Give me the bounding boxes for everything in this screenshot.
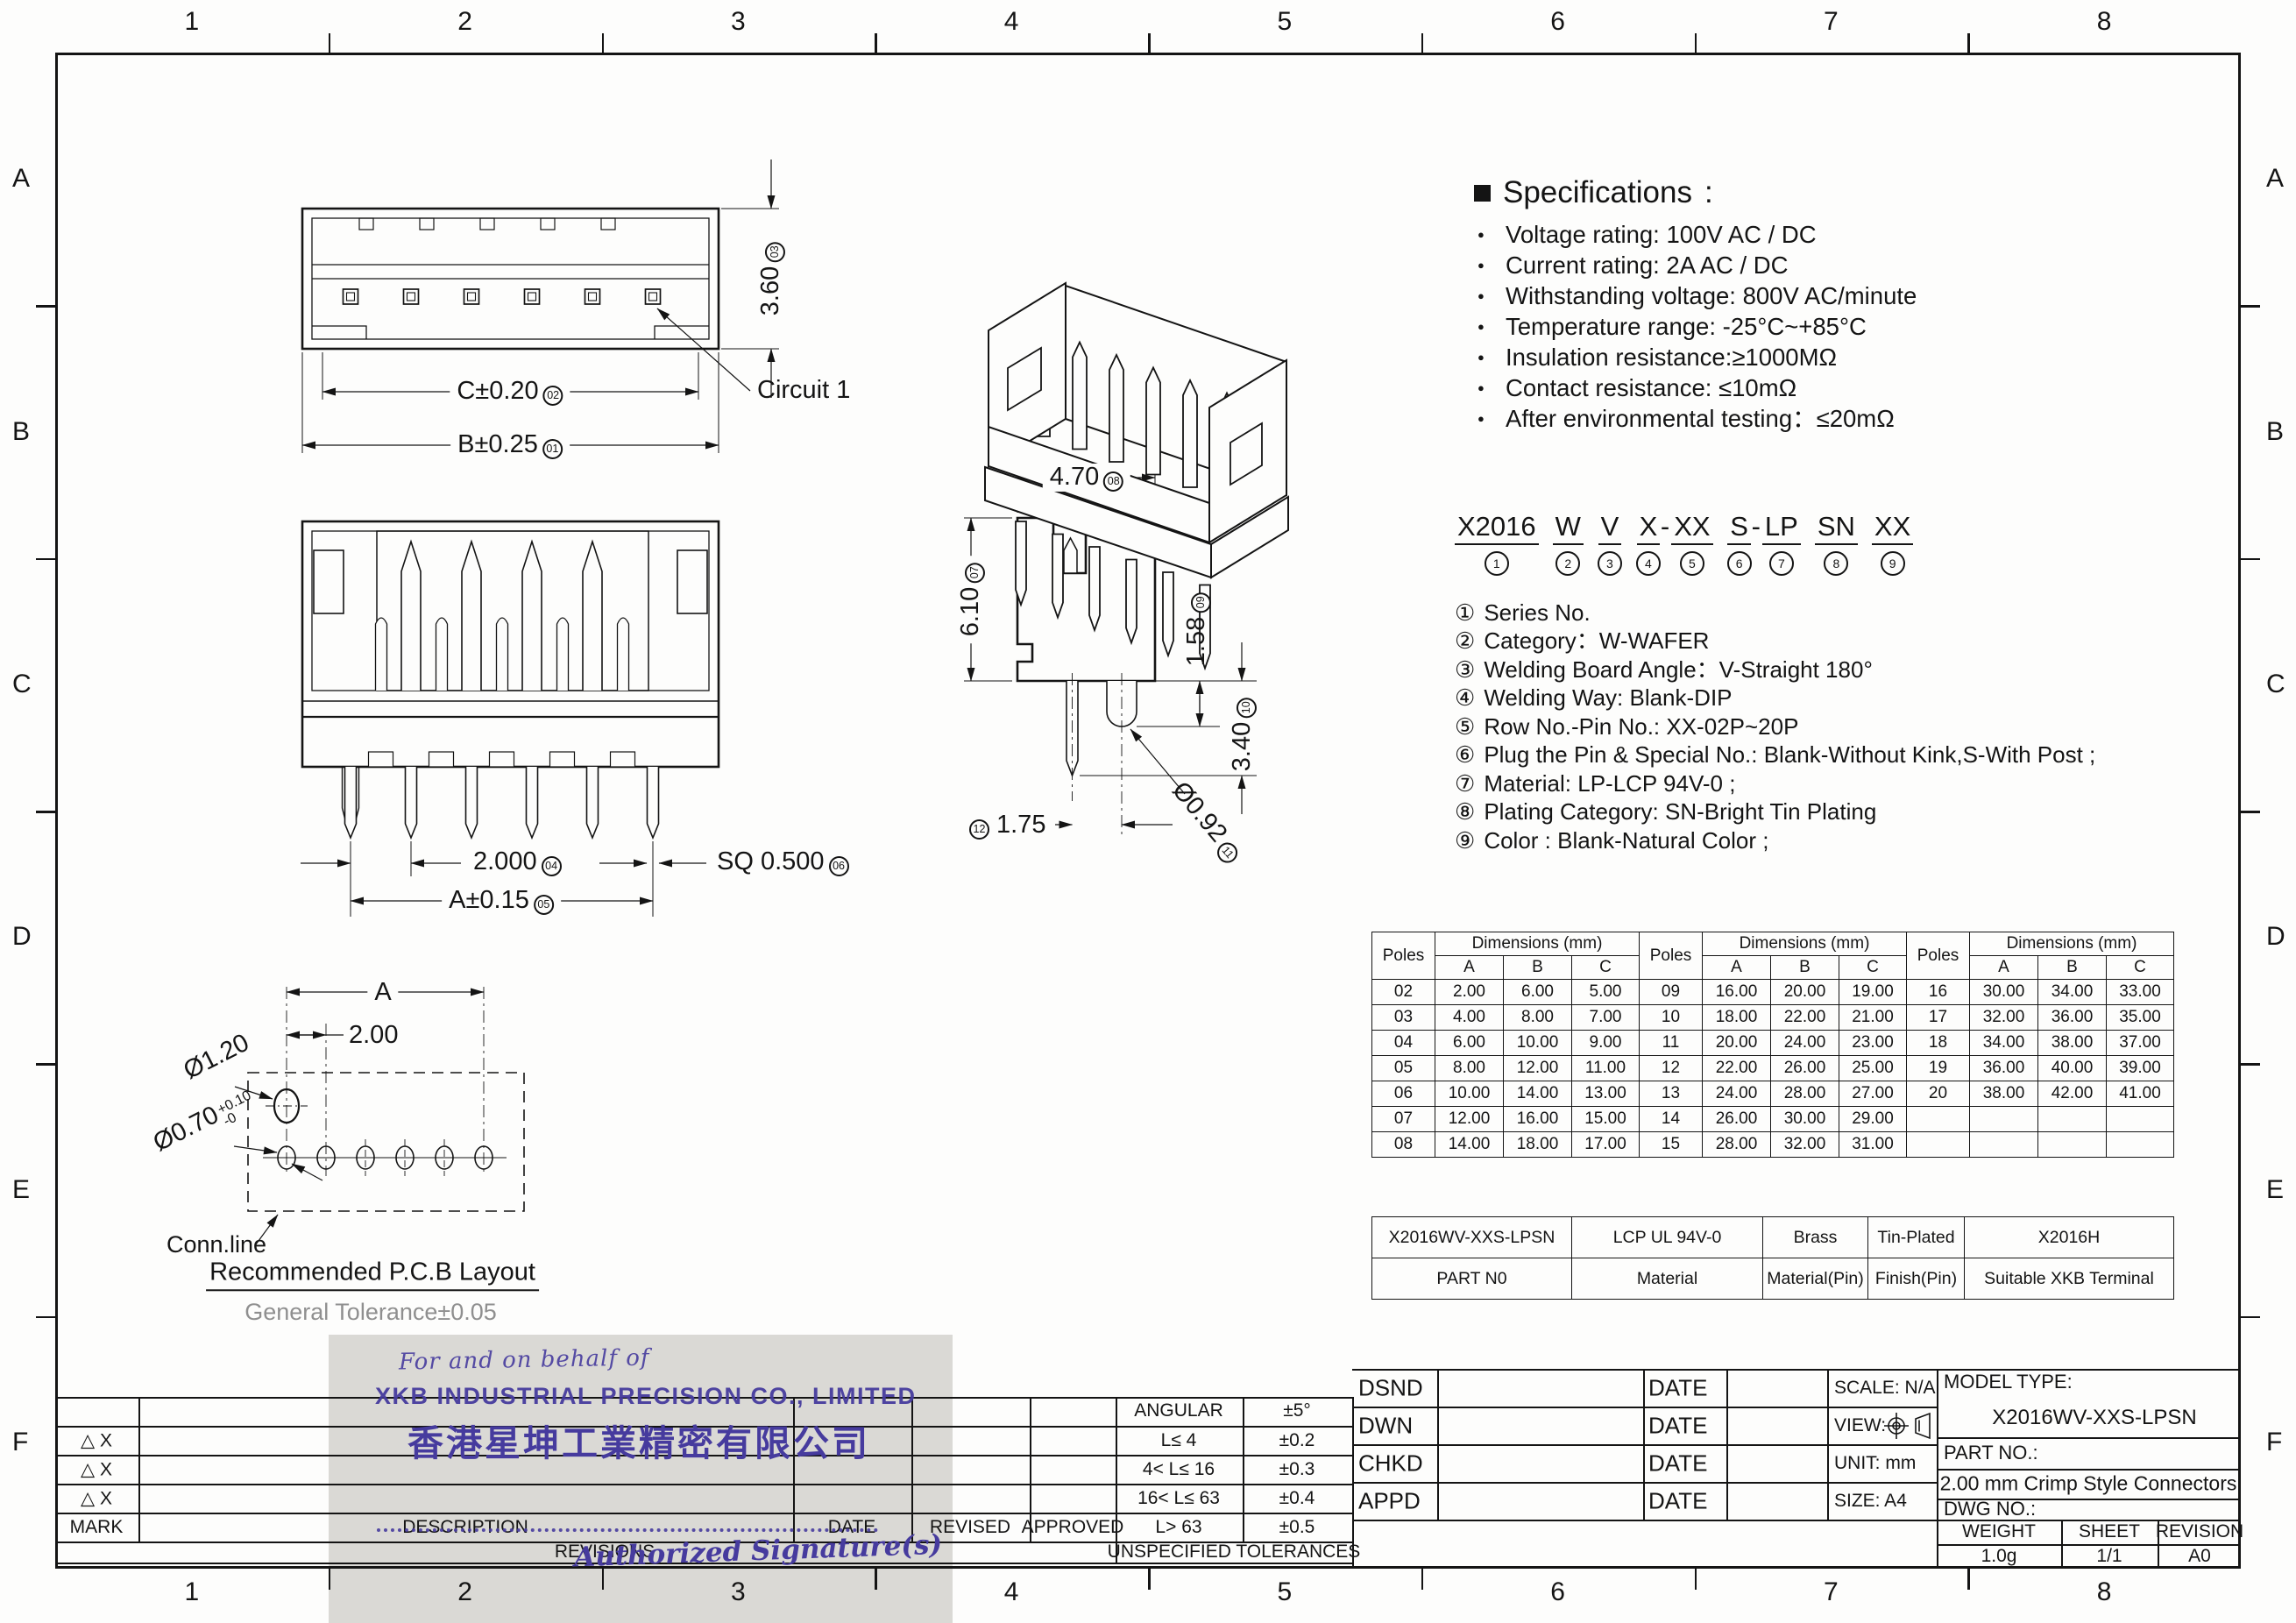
- table-cell: 42.00: [2038, 1081, 2107, 1107]
- table-cell: 19: [1907, 1056, 1970, 1081]
- legend-text: Welding Way: Blank-DIP: [1484, 684, 1732, 711]
- tol-value: ±5°: [1283, 1400, 1311, 1421]
- table-cell: 28.00: [1703, 1132, 1771, 1158]
- table-cell: 31.00: [1839, 1132, 1907, 1158]
- table-cell: 24.00: [1771, 1031, 1839, 1056]
- table-row: 058.0012.0011.001222.0026.0025.001936.00…: [1372, 1056, 2174, 1081]
- stamp-company-en: XKB INDUSTRIAL PRECISION CO., LIMITED: [375, 1383, 917, 1410]
- general-tolerance-label: General Tolerance±0.05: [244, 1300, 497, 1324]
- table-cell: 37.00: [2107, 1031, 2174, 1056]
- pn-token-text: SN: [1815, 513, 1858, 545]
- grid-column-label: 7: [1824, 7, 1839, 37]
- table-cell: 07: [1372, 1107, 1435, 1132]
- pn-token-text: S: [1727, 513, 1751, 545]
- border-tick: [1695, 33, 1697, 54]
- table-cell: 16.00: [1504, 1107, 1572, 1132]
- revision-value: A0: [2188, 1546, 2211, 1567]
- tol-value: ±0.3: [1279, 1459, 1315, 1480]
- stamp-for-text: For and on behalf of: [399, 1345, 650, 1376]
- grid-column-label: 4: [1004, 1577, 1019, 1607]
- legend-line: ③Welding Board Angle：V-Straight 180°: [1455, 656, 2095, 684]
- table-cell: 5.00: [1572, 980, 1640, 1005]
- approved-header: APPROVED: [1022, 1517, 1124, 1538]
- product-name: 2.00 mm Crimp Style Connectors: [1940, 1472, 2237, 1496]
- legend-number: ⑤: [1455, 713, 1475, 740]
- dim-1-75: 121.75: [969, 811, 1045, 840]
- unit-label: UNIT: mm: [1834, 1453, 1916, 1474]
- border-tick: [2239, 811, 2260, 813]
- pn-token: S6: [1727, 513, 1752, 576]
- model-type-label: MODEL TYPE:: [1944, 1371, 2073, 1393]
- tol-label: 16< L≤ 63: [1137, 1488, 1220, 1509]
- legend-text: Welding Board Angle：V-Straight 180°: [1484, 656, 1873, 683]
- dim-sq: SQ 0.50006: [717, 848, 849, 876]
- scale-label: SCALE: N/A: [1834, 1378, 1936, 1399]
- pn-token-number: 1: [1485, 551, 1509, 576]
- table-cell: X2016H: [1965, 1217, 2174, 1258]
- dim-b: B±0.2501: [450, 431, 570, 459]
- table-cell: [2038, 1132, 2107, 1158]
- grid-row-label: D: [2266, 922, 2285, 952]
- pn-token-number: 4: [1636, 551, 1661, 576]
- circuit-1-label: Circuit 1: [757, 377, 850, 403]
- table-cell: Brass: [1763, 1217, 1868, 1258]
- grid-column-label: 1: [185, 1577, 200, 1607]
- table-cell: 16.00: [1703, 980, 1771, 1005]
- dim-pcb-a: A: [367, 979, 398, 1005]
- dim-4-70: 4.7008: [1043, 464, 1130, 492]
- border-tick: [875, 1569, 877, 1590]
- stamp-company-cn: 香港星坤工業精密有限公司: [407, 1414, 870, 1466]
- sheet-label: SHEET: [2079, 1521, 2140, 1542]
- pn-token: V3: [1598, 513, 1622, 576]
- table-row: 0610.0014.0013.001324.0028.0027.002038.0…: [1372, 1081, 2174, 1107]
- table-cell: 28.00: [1771, 1081, 1839, 1107]
- table-cell: 34.00: [2038, 980, 2107, 1005]
- legend-line: ④Welding Way: Blank-DIP: [1455, 684, 2095, 712]
- tol-label: 4< L≤ 16: [1143, 1459, 1215, 1480]
- part-info-table: X2016WV-XXS-LPSNLCP UL 94V-0BrassTin-Pla…: [1371, 1216, 2174, 1300]
- table-cell: 26.00: [1703, 1107, 1771, 1132]
- grid-column-label: 5: [1278, 1577, 1293, 1607]
- border-tick: [329, 1569, 331, 1590]
- square-bullet-icon: [1474, 185, 1491, 202]
- table-cell: [1907, 1132, 1970, 1158]
- date-cell: DATE: [1648, 1413, 1707, 1440]
- col-dimensions: Dimensions (mm): [1703, 932, 1907, 956]
- border-tick: [329, 33, 331, 54]
- legend-number: ④: [1455, 684, 1475, 711]
- legend-number: ⑧: [1455, 798, 1475, 825]
- table-cell: 38.00: [2038, 1031, 2107, 1056]
- table-cell: 36.00: [1970, 1056, 2038, 1081]
- table-cell: 24.00: [1703, 1081, 1771, 1107]
- table-row: 046.0010.009.001120.0024.0023.001834.003…: [1372, 1031, 2174, 1056]
- specifications-block: Specifications : Voltage rating: 100V AC…: [1474, 175, 1917, 434]
- specifications-title: Specifications :: [1474, 175, 1917, 210]
- table-cell: 14.00: [1435, 1132, 1504, 1158]
- grid-row-label: A: [2266, 164, 2284, 194]
- legend-line: ⑦Material: LP-LCP 94V-0 ;: [1455, 769, 2095, 798]
- table-cell: 10: [1640, 1005, 1703, 1031]
- pn-token: X4: [1636, 513, 1661, 576]
- view-label: VIEW:: [1834, 1415, 1886, 1436]
- legend-number: ②: [1455, 627, 1475, 654]
- table-cell: 4.00: [1435, 1005, 1504, 1031]
- table-cell: 17: [1907, 1005, 1970, 1031]
- part-number-block: X20161W2V3X4-XX5S6-LP7SN8XX9 ①Series No.…: [1455, 513, 2095, 854]
- stamp-dotted-line: [377, 1528, 878, 1532]
- border-tick: [1421, 1569, 1424, 1590]
- pn-token-number: 9: [1881, 551, 1905, 576]
- border-tick: [2239, 1063, 2260, 1066]
- table-cell: X2016WV-XXS-LPSN: [1372, 1217, 1572, 1258]
- dim-1-58: 1.5809: [1183, 592, 1211, 666]
- table-row: 0712.0016.0015.001426.0030.0029.00: [1372, 1107, 2174, 1132]
- grid-row-label: F: [12, 1428, 28, 1457]
- table-cell: 02: [1372, 980, 1435, 1005]
- table-cell: [1970, 1107, 2038, 1132]
- col-dimensions: Dimensions (mm): [1970, 932, 2174, 956]
- border-tick: [2239, 305, 2260, 308]
- mark-row-3: △ X: [81, 1488, 112, 1510]
- legend-text: Series No.: [1484, 599, 1590, 626]
- pn-token: LP7: [1762, 513, 1801, 576]
- border-tick: [1967, 1569, 1970, 1590]
- table-cell: 33.00: [2107, 980, 2174, 1005]
- table-cell: 41.00: [2107, 1081, 2174, 1107]
- pn-token: XX5: [1671, 513, 1712, 576]
- table-cell: 26.00: [1771, 1056, 1839, 1081]
- model-type-value: X2016WV-XXS-LPSN: [1992, 1406, 2196, 1430]
- dimensions-table-subheader: ABC ABC ABC: [1372, 956, 2174, 980]
- table-cell: [1970, 1132, 2038, 1158]
- tol-value: ±0.4: [1279, 1488, 1315, 1509]
- spec-item: Contact resistance: ≤10mΩ: [1474, 372, 1917, 403]
- table-cell: [2038, 1107, 2107, 1132]
- table-cell: 15: [1640, 1132, 1703, 1158]
- table-cell: 7.00: [1572, 1005, 1640, 1031]
- dimensions-table: Poles Dimensions (mm) Poles Dimensions (…: [1371, 932, 2174, 1158]
- pn-token-text: X: [1637, 513, 1661, 545]
- revised-header: REVISED: [930, 1517, 1010, 1538]
- table-cell: 6.00: [1504, 980, 1572, 1005]
- table-cell: 11: [1640, 1031, 1703, 1056]
- legend-text: Category：W-WAFER: [1484, 627, 1709, 654]
- col-dimensions: Dimensions (mm): [1435, 932, 1640, 956]
- legend-line: ⑧Plating Category: SN-Bright Tin Plating: [1455, 797, 2095, 826]
- table-cell: 09: [1640, 980, 1703, 1005]
- table-cell: 10.00: [1435, 1081, 1504, 1107]
- table-cell: 32.00: [1970, 1005, 2038, 1031]
- chkd-label: CHKD: [1358, 1450, 1423, 1478]
- table-cell: 30.00: [1771, 1107, 1839, 1132]
- description-header: DESCRIPTION: [402, 1517, 528, 1538]
- dim-pcb-2-00: 2.00: [349, 1022, 398, 1048]
- part-number-legend: ①Series No.②Category：W-WAFER③Welding Boa…: [1455, 599, 2095, 855]
- table-cell: 20.00: [1703, 1031, 1771, 1056]
- legend-text: Plug the Pin & Special No.: Blank-Withou…: [1484, 741, 2095, 768]
- border-tick: [1148, 1569, 1151, 1590]
- border-tick: [602, 33, 605, 54]
- table-cell: 6.00: [1435, 1031, 1504, 1056]
- table-row: 022.006.005.000916.0020.0019.001630.0034…: [1372, 980, 2174, 1005]
- size-label: SIZE: A4: [1834, 1491, 1907, 1512]
- legend-number: ⑨: [1455, 827, 1475, 854]
- table-cell: 20.00: [1771, 980, 1839, 1005]
- pn-separator: -: [1661, 513, 1669, 542]
- col-poles: Poles: [1372, 932, 1435, 980]
- table-cell: 14: [1640, 1107, 1703, 1132]
- tol-value: ±0.5: [1279, 1517, 1315, 1538]
- table-cell: PART N0: [1372, 1258, 1572, 1300]
- pn-token: W2: [1553, 513, 1584, 576]
- table-cell: 2.00: [1435, 980, 1504, 1005]
- dwg-no-label: DWG NO.:: [1944, 1498, 2036, 1520]
- grid-column-label: 4: [1004, 7, 1019, 37]
- table-cell: 12.00: [1504, 1056, 1572, 1081]
- tol-label: L> 63: [1155, 1517, 1201, 1538]
- date-cell: DATE: [1648, 1375, 1707, 1402]
- dim-3-60: 3.6003: [757, 235, 785, 322]
- spec-item: Voltage rating: 100V AC / DC: [1474, 219, 1917, 250]
- tol-label: ANGULAR: [1134, 1400, 1223, 1421]
- table-row: 034.008.007.001018.0022.0021.001732.0036…: [1372, 1005, 2174, 1031]
- legend-text: Row No.-Pin No.: XX-02P~20P: [1484, 713, 1798, 740]
- tol-label: L≤ 4: [1161, 1430, 1197, 1451]
- weight-value: 1.0g: [1981, 1546, 2017, 1567]
- table-cell: 21.00: [1839, 1005, 1907, 1031]
- date-cell: DATE: [1648, 1450, 1707, 1478]
- pn-token-number: 3: [1598, 551, 1622, 576]
- table-cell: 17.00: [1572, 1132, 1640, 1158]
- table-cell: 39.00: [2107, 1056, 2174, 1081]
- border-tick: [36, 1316, 57, 1319]
- table-cell: 15.00: [1572, 1107, 1640, 1132]
- border-tick: [36, 1063, 57, 1066]
- pn-token-text: LP: [1762, 513, 1801, 545]
- legend-number: ⑦: [1455, 770, 1475, 797]
- table-cell: [2107, 1107, 2174, 1132]
- pn-token: SN8: [1815, 513, 1858, 576]
- pn-separator: -: [1752, 513, 1761, 542]
- spec-item: Insulation resistance:≥1000MΩ: [1474, 342, 1917, 372]
- table-cell: 9.00: [1572, 1031, 1640, 1056]
- table-cell: 03: [1372, 1005, 1435, 1031]
- grid-column-label: 2: [457, 1577, 472, 1607]
- border-tick: [36, 811, 57, 813]
- col-poles: Poles: [1907, 932, 1970, 980]
- legend-line: ⑤Row No.-Pin No.: XX-02P~20P: [1455, 712, 2095, 741]
- dim-3-40: 3.4010: [1229, 698, 1257, 771]
- grid-column-label: 8: [2097, 1577, 2112, 1607]
- grid-row-label: C: [12, 670, 32, 699]
- legend-number: ⑥: [1455, 741, 1475, 768]
- dwn-label: DWN: [1358, 1413, 1413, 1440]
- table-cell: 20: [1907, 1081, 1970, 1107]
- table-cell: Finish(Pin): [1868, 1258, 1965, 1300]
- border-tick: [2239, 1316, 2260, 1319]
- border-tick: [2239, 558, 2260, 561]
- table-cell: 35.00: [2107, 1005, 2174, 1031]
- grid-column-label: 6: [1550, 7, 1565, 37]
- spec-item: Current rating: 2A AC / DC: [1474, 250, 1917, 280]
- pn-token-text: XX: [1872, 513, 1913, 545]
- specifications-title-text: Specifications: [1503, 175, 1692, 210]
- spec-item: Temperature range: -25°C~+85°C: [1474, 311, 1917, 342]
- col-poles: Poles: [1640, 932, 1703, 980]
- border-tick: [1695, 1569, 1697, 1590]
- table-cell: 06: [1372, 1081, 1435, 1107]
- table-cell: 10.00: [1504, 1031, 1572, 1056]
- part-number-format: X20161W2V3X4-XX5S6-LP7SN8XX9: [1455, 513, 2095, 576]
- grid-row-label: C: [2266, 670, 2285, 699]
- table-cell: 32.00: [1771, 1132, 1839, 1158]
- grid-column-label: 5: [1278, 7, 1293, 37]
- mark-row-1: △ X: [81, 1430, 112, 1452]
- table-cell: LCP UL 94V-0: [1572, 1217, 1763, 1258]
- mark-header: MARK: [70, 1517, 124, 1538]
- border-tick: [1148, 33, 1151, 54]
- table-cell: 40.00: [2038, 1056, 2107, 1081]
- pn-token-number: 5: [1680, 551, 1704, 576]
- table-cell: Suitable XKB Terminal: [1965, 1258, 2174, 1300]
- part-no-label: PART NO.:: [1944, 1442, 2038, 1464]
- table-cell: 13.00: [1572, 1081, 1640, 1107]
- table-cell: 04: [1372, 1031, 1435, 1056]
- pn-token-text: V: [1598, 513, 1622, 545]
- table-row: 0814.0018.0017.001528.0032.0031.00: [1372, 1132, 2174, 1158]
- table-cell: 18.00: [1504, 1132, 1572, 1158]
- pn-token-text: W: [1553, 513, 1584, 545]
- legend-number: ③: [1455, 656, 1475, 683]
- grid-row-label: A: [12, 164, 30, 194]
- table-cell: 13: [1640, 1081, 1703, 1107]
- border-tick: [1421, 33, 1424, 54]
- conn-line-label: Conn.line: [167, 1232, 266, 1257]
- dsnd-label: DSND: [1358, 1375, 1423, 1402]
- table-cell: [2107, 1132, 2174, 1158]
- table-cell: 38.00: [1970, 1081, 2038, 1107]
- table-cell: 05: [1372, 1056, 1435, 1081]
- table-cell: Tin-Plated: [1868, 1217, 1965, 1258]
- table-cell: Material(Pin): [1763, 1258, 1868, 1300]
- table-row: PART N0MaterialMaterial(Pin)Finish(Pin)S…: [1372, 1258, 2174, 1300]
- table-cell: 11.00: [1572, 1056, 1640, 1081]
- legend-text: Material: LP-LCP 94V-0 ;: [1484, 770, 1735, 797]
- dim-c: C±0.2002: [450, 378, 570, 406]
- unspecified-tolerances-label: UNSPECIFIED TOLERANCES: [1108, 1541, 1361, 1563]
- table-cell: 16: [1907, 980, 1970, 1005]
- pn-token-number: 7: [1769, 551, 1794, 576]
- grid-row-label: B: [2266, 417, 2284, 447]
- pcb-layout-title: Recommended P.C.B Layout: [206, 1258, 539, 1291]
- legend-line: ⑥Plug the Pin & Special No.: Blank-Witho…: [1455, 741, 2095, 769]
- grid-column-label: 3: [731, 7, 746, 37]
- pn-token: X20161: [1455, 513, 1539, 576]
- border-tick: [875, 33, 877, 54]
- grid-row-label: B: [12, 417, 30, 447]
- table-cell: Material: [1572, 1258, 1763, 1300]
- third-angle-projection-icon: [1884, 1409, 1935, 1442]
- legend-line: ⑨Color : Blank-Natural Color ;: [1455, 826, 2095, 855]
- table-cell: 19.00: [1839, 980, 1907, 1005]
- spec-item: Withstanding voltage: 800V AC/minute: [1474, 280, 1917, 311]
- table-cell: 14.00: [1504, 1081, 1572, 1107]
- pn-token-text: X2016: [1455, 513, 1539, 545]
- table-cell: [1907, 1107, 1970, 1132]
- dimensions-table-header: Poles Dimensions (mm) Poles Dimensions (…: [1372, 932, 2174, 956]
- legend-line: ②Category：W-WAFER: [1455, 627, 2095, 656]
- table-cell: 18.00: [1703, 1005, 1771, 1031]
- table-cell: 22.00: [1703, 1056, 1771, 1081]
- legend-text: Color : Blank-Natural Color ;: [1484, 827, 1768, 854]
- grid-row-label: E: [12, 1175, 30, 1205]
- table-cell: 25.00: [1839, 1056, 1907, 1081]
- grid-column-label: 3: [731, 1577, 746, 1607]
- table-cell: 34.00: [1970, 1031, 2038, 1056]
- table-cell: 12.00: [1435, 1107, 1504, 1132]
- legend-line: ①Series No.: [1455, 599, 2095, 627]
- border-tick: [36, 558, 57, 561]
- table-cell: 36.00: [2038, 1005, 2107, 1031]
- table-cell: 8.00: [1435, 1056, 1504, 1081]
- table-cell: 23.00: [1839, 1031, 1907, 1056]
- border-tick: [36, 305, 57, 308]
- border-tick: [1967, 33, 1970, 54]
- appd-label: APPD: [1358, 1488, 1421, 1515]
- grid-column-label: 1: [185, 7, 200, 37]
- weight-label: WEIGHT: [1962, 1521, 2036, 1542]
- date-cell: DATE: [1648, 1488, 1707, 1515]
- pn-token: XX9: [1872, 513, 1913, 576]
- table-cell: 12: [1640, 1056, 1703, 1081]
- specifications-list: Voltage rating: 100V AC / DCCurrent rati…: [1474, 219, 1917, 434]
- table-cell: 18: [1907, 1031, 1970, 1056]
- pn-token-number: 2: [1555, 551, 1580, 576]
- table-cell: 30.00: [1970, 980, 2038, 1005]
- grid-row-label: D: [12, 922, 32, 952]
- table-cell: 22.00: [1771, 1005, 1839, 1031]
- grid-column-label: 2: [457, 7, 472, 37]
- grid-column-label: 6: [1550, 1577, 1565, 1607]
- pn-token-number: 6: [1727, 551, 1752, 576]
- grid-column-label: 8: [2097, 7, 2112, 37]
- pn-token-text: XX: [1671, 513, 1712, 545]
- grid-column-label: 7: [1824, 1577, 1839, 1607]
- legend-number: ①: [1455, 599, 1475, 626]
- dim-a: A±0.1505: [442, 887, 561, 915]
- spec-item: After environmental testing：≤20mΩ: [1474, 403, 1917, 434]
- mark-row-2: △ X: [81, 1459, 112, 1481]
- table-cell: 08: [1372, 1132, 1435, 1158]
- legend-text: Plating Category: SN-Bright Tin Plating: [1484, 798, 1876, 825]
- tol-value: ±0.2: [1279, 1430, 1315, 1451]
- dim-6-10: 6.1007: [957, 556, 985, 643]
- table-cell: 8.00: [1504, 1005, 1572, 1031]
- dim-pitch: 2.00004: [473, 848, 562, 876]
- grid-row-label: E: [2266, 1175, 2284, 1205]
- sheet-value: 1/1: [2096, 1546, 2122, 1567]
- table-cell: 27.00: [1839, 1081, 1907, 1107]
- table-row: X2016WV-XXS-LPSNLCP UL 94V-0BrassTin-Pla…: [1372, 1217, 2174, 1258]
- revision-label: REVISION: [2156, 1521, 2243, 1542]
- pn-token-number: 8: [1824, 551, 1848, 576]
- table-cell: 29.00: [1839, 1107, 1907, 1132]
- grid-row-label: F: [2266, 1428, 2282, 1457]
